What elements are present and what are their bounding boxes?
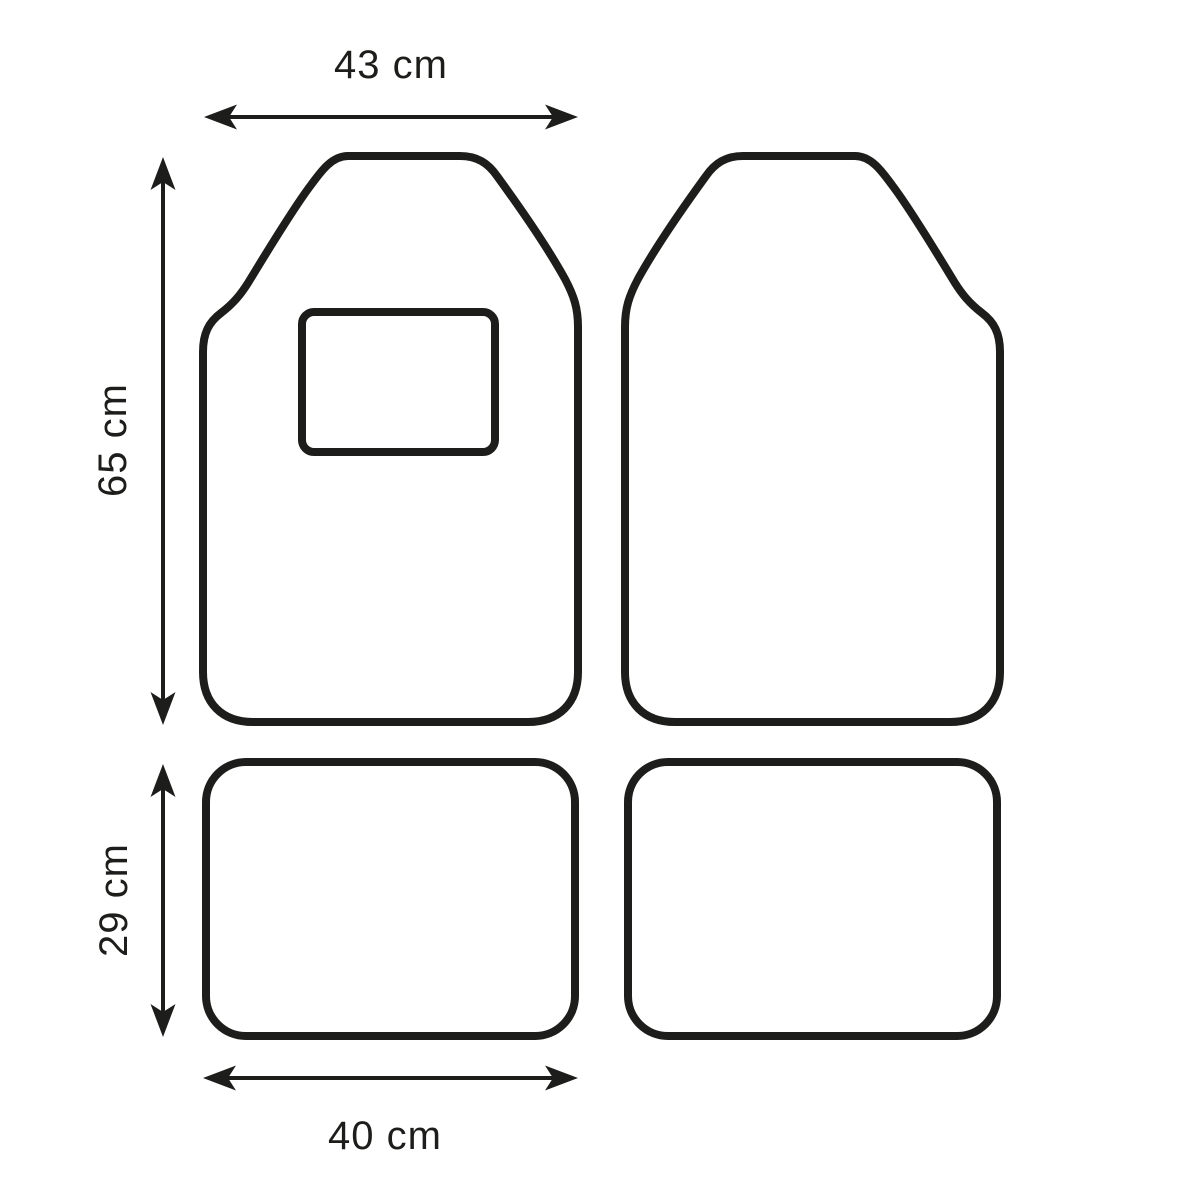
heel-pad-inset [302, 312, 495, 452]
front-right-mat [625, 156, 1000, 722]
rear-right-mat-outline [628, 762, 997, 1036]
front-width-dimension: 43 cm [204, 43, 578, 130]
rear-height-dimension: 29 cm [92, 764, 176, 1037]
front-height-dimension: 65 cm [91, 157, 176, 725]
rear-width-dimension: 40 cm [203, 1066, 578, 1159]
rear-width-dimension-label: 40 cm [328, 1114, 442, 1158]
rear-height-dimension-label: 29 cm [92, 843, 136, 957]
rear-left-mat-outline [206, 762, 575, 1036]
front-width-dimension-label: 43 cm [334, 43, 448, 87]
dimension-diagram: 43 cm 65 cm 29 cm 40 cm [0, 0, 1200, 1200]
front-left-mat [203, 156, 578, 722]
diagram-canvas: 43 cm 65 cm 29 cm 40 cm [0, 0, 1200, 1200]
front-height-dimension-label: 65 cm [91, 383, 135, 497]
front-right-mat-outline [625, 156, 1000, 722]
